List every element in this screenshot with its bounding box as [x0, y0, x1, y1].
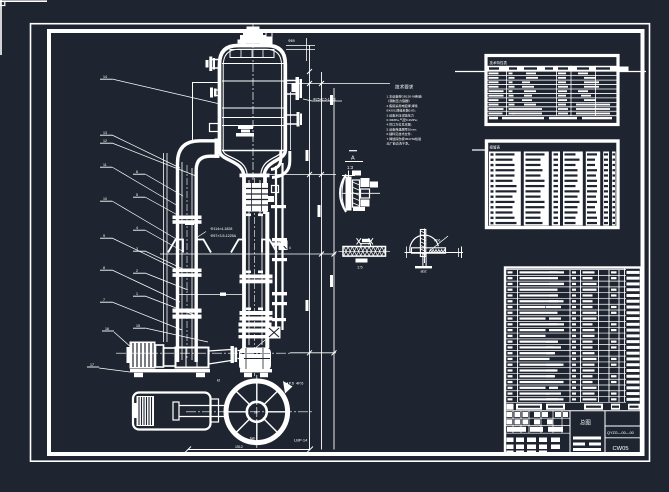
- svg-text:5: 5: [136, 193, 138, 197]
- svg-text:2.焦接采用电弧焊,焊条: 2.焦接采用电弧焊,焊条: [387, 103, 418, 108]
- svg-text:4.管口方位见本图;: 4.管口方位见本图;: [387, 122, 412, 127]
- svg-text:6.播料见技术文件;: 6.播料见技术文件;: [387, 131, 412, 136]
- svg-text:CW05: CW05: [613, 446, 629, 452]
- svg-text:QYZG—00—00: QYZG—00—00: [607, 431, 634, 435]
- svg-text:14: 14: [103, 75, 107, 79]
- svg-text:出厂前清洗干净。: 出厂前清洗干净。: [387, 141, 412, 146]
- svg-text:《钢制压力容器》: 《钢制压力容器》: [387, 98, 412, 103]
- svg-text:1:5: 1:5: [357, 265, 363, 270]
- svg-text:6: 6: [136, 170, 138, 174]
- svg-text:6b: 6b: [254, 411, 258, 415]
- svg-text:16: 16: [105, 327, 109, 331]
- svg-text:4: 4: [136, 226, 138, 230]
- svg-text:技术要求: 技术要求: [395, 84, 414, 91]
- svg-text:1: 1: [136, 292, 138, 296]
- svg-text:1:3: 1:3: [347, 165, 354, 170]
- svg-text:2: 2: [136, 269, 138, 273]
- svg-text:12: 12: [103, 139, 107, 143]
- svg-text:10: 10: [103, 197, 107, 201]
- svg-text:Φ114×4-1828: Φ114×4-1828: [211, 227, 233, 231]
- svg-text:1.本设备按GB150-98制造: 1.本设备按GB150-98制造: [387, 94, 422, 99]
- svg-text:fab: fab: [250, 437, 255, 441]
- svg-text:总图: 总图: [580, 419, 591, 427]
- svg-text:Pb6: Pb6: [434, 239, 440, 243]
- svg-text:11: 11: [103, 163, 107, 167]
- svg-text:7: 7: [103, 298, 105, 302]
- svg-text:1512: 1512: [235, 445, 243, 449]
- svg-text:Φ57×3.5-1225A: Φ57×3.5-1225A: [211, 234, 237, 238]
- svg-text:5.设备保温层厚50mm;: 5.设备保温层厚50mm;: [387, 126, 418, 131]
- svg-text:17: 17: [90, 363, 94, 367]
- svg-text:8: 8: [103, 266, 105, 270]
- svg-text:15: 15: [136, 324, 140, 328]
- svg-text:9: 9: [103, 234, 105, 238]
- svg-text:LBP-14: LBP-14: [294, 438, 308, 443]
- svg-text:4: 4: [289, 246, 291, 250]
- svg-text:ab2: ab2: [421, 270, 427, 274]
- svg-text:A: A: [351, 156, 355, 162]
- svg-text:4P.6: 4P.6: [296, 382, 303, 386]
- svg-text:3.设备水压试验压力: 3.设备水压试验压力: [387, 112, 414, 117]
- svg-text:13: 13: [103, 131, 107, 135]
- svg-text:技术特性表: 技术特性表: [490, 60, 508, 65]
- svg-text:7.焊缝探伤按JB4730检验: 7.焊缝探伤按JB4730检验: [387, 136, 423, 141]
- svg-text:Φ89: Φ89: [288, 39, 295, 43]
- svg-text:接管表: 接管表: [490, 145, 501, 150]
- svg-text:E4303,焊缝系数0.85;: E4303,焊缝系数0.85;: [387, 108, 416, 113]
- svg-text:0.30MPa,气密0.2MPa;: 0.30MPa,气密0.2MPa;: [387, 117, 418, 122]
